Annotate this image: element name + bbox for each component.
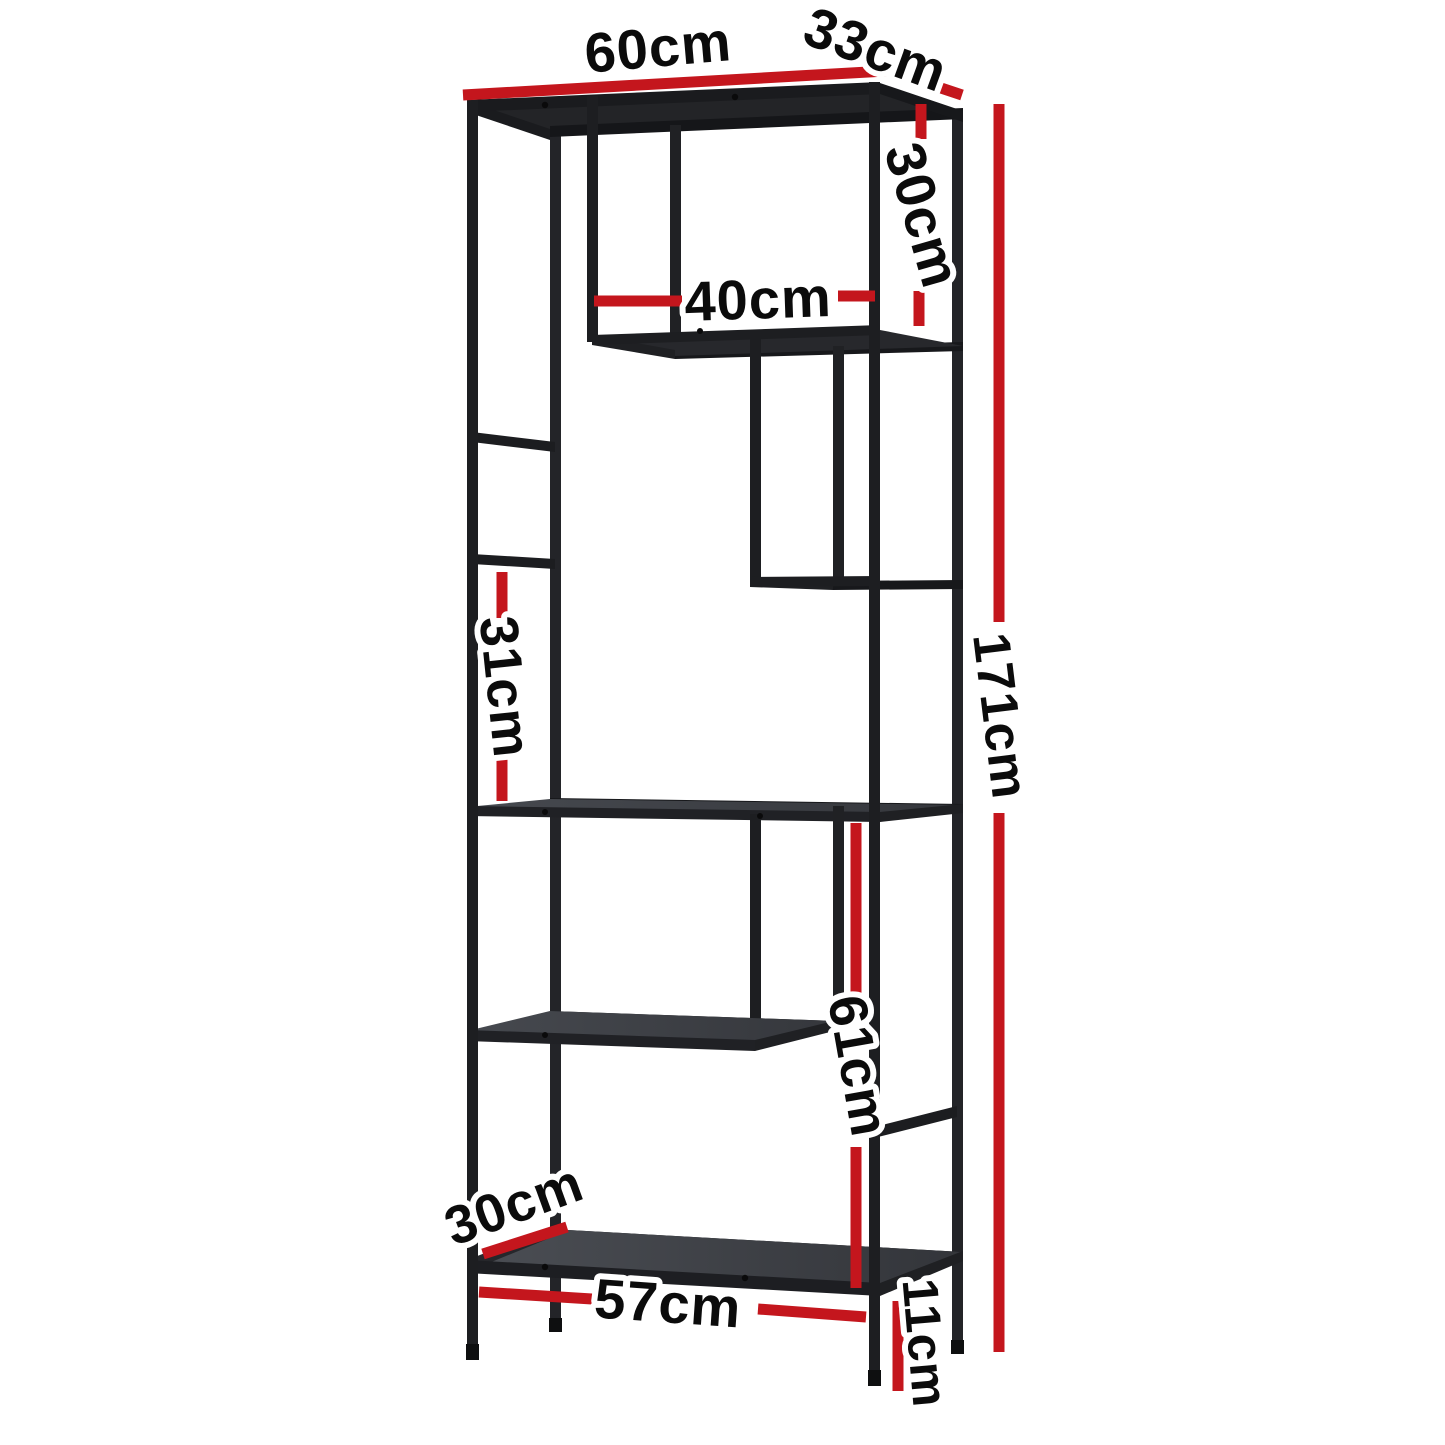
left-front-foot xyxy=(466,1344,479,1360)
lower-divider-back xyxy=(833,806,844,1018)
top-width-label: 60cm xyxy=(582,9,734,85)
diagram-svg: 60cm 33cm 30cm 40cm 31cm 171cm 61cm 30cm… xyxy=(0,0,1445,1445)
left-side-brace-upper xyxy=(472,432,555,452)
right-front-foot xyxy=(868,1370,881,1386)
opening-width-label: 40cm xyxy=(683,265,832,333)
back-left-post xyxy=(550,126,561,1318)
upper-divider-back xyxy=(833,346,844,586)
back-left-foot xyxy=(549,1318,562,1332)
bottom-width-label: 57cm xyxy=(592,1266,743,1339)
upper-divider-front xyxy=(750,330,761,582)
bottom-width-line-right xyxy=(758,1309,866,1317)
dimension-labels: 60cm 33cm 30cm 40cm 31cm 171cm 61cm 30cm… xyxy=(437,0,1039,1410)
total-height-label: 171cm xyxy=(961,630,1039,803)
product-dimension-diagram: 60cm 33cm 30cm 40cm 31cm 171cm 61cm 30cm… xyxy=(0,0,1445,1445)
leg-height-label: 11cm xyxy=(891,1276,958,1410)
left-front-post xyxy=(467,100,478,1344)
left-side-brace-lower xyxy=(472,554,555,569)
back-right-post xyxy=(952,110,963,1340)
hanging-divider-back xyxy=(670,125,681,355)
middle-section-label: 31cm xyxy=(468,613,543,761)
half-shelf-front-rail xyxy=(750,576,880,587)
right-front-post xyxy=(869,82,880,1370)
lower-divider-front xyxy=(750,814,761,1040)
lower-section-label: 61cm xyxy=(816,991,900,1141)
bottom-width-line-left xyxy=(479,1292,592,1299)
